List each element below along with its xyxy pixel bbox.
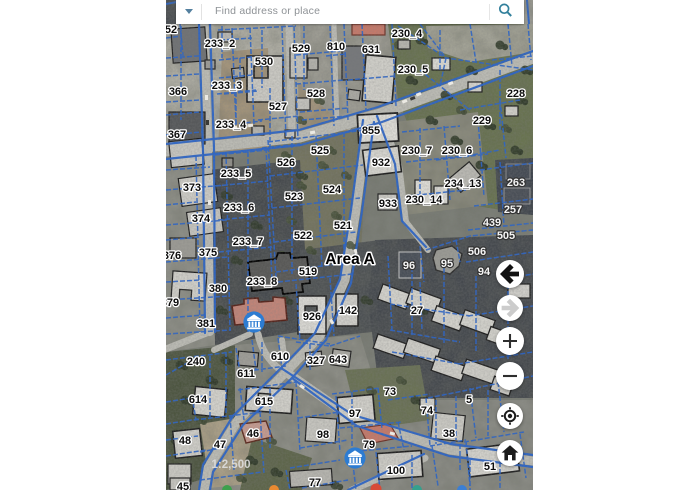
svg-text:439: 439 <box>483 217 501 229</box>
svg-text:521: 521 <box>334 220 352 232</box>
svg-text:45: 45 <box>177 481 189 490</box>
svg-text:Area A: Area A <box>325 251 374 268</box>
svg-text:615: 615 <box>255 396 273 408</box>
svg-text:380: 380 <box>209 283 227 295</box>
svg-text:379: 379 <box>166 297 179 309</box>
svg-text:810: 810 <box>327 41 345 53</box>
svg-text:234_13: 234_13 <box>445 178 482 190</box>
svg-text:611: 611 <box>237 368 255 380</box>
svg-text:51: 51 <box>484 461 496 473</box>
svg-text:614: 614 <box>189 394 208 406</box>
svg-text:233_3: 233_3 <box>212 80 243 92</box>
svg-text:1:2,500: 1:2,500 <box>211 459 250 471</box>
svg-text:100: 100 <box>387 465 405 477</box>
svg-text:230_7: 230_7 <box>402 145 433 157</box>
svg-text:47: 47 <box>214 439 226 451</box>
svg-text:375: 375 <box>199 247 217 259</box>
svg-text:233_7: 233_7 <box>233 236 264 248</box>
svg-text:94: 94 <box>478 266 491 278</box>
svg-text:376: 376 <box>166 250 181 262</box>
svg-text:528: 528 <box>307 88 325 100</box>
svg-text:932: 932 <box>372 157 390 169</box>
svg-text:233_2: 233_2 <box>205 38 236 50</box>
svg-text:233_8: 233_8 <box>247 276 278 288</box>
svg-text:98: 98 <box>317 429 329 441</box>
svg-text:530: 530 <box>255 56 273 68</box>
svg-text:374: 374 <box>192 213 211 225</box>
svg-text:142: 142 <box>339 305 357 317</box>
svg-text:73: 73 <box>384 386 396 398</box>
svg-text:529: 529 <box>292 43 310 55</box>
svg-text:263: 263 <box>507 177 525 189</box>
svg-text:327: 327 <box>307 355 325 367</box>
svg-text:5: 5 <box>466 394 472 406</box>
svg-text:367: 367 <box>168 129 186 141</box>
svg-text:233_6: 233_6 <box>224 202 255 214</box>
svg-text:74: 74 <box>421 405 434 417</box>
svg-text:48: 48 <box>179 435 191 447</box>
svg-text:523: 523 <box>285 191 303 203</box>
svg-text:505: 505 <box>497 230 515 242</box>
svg-text:96: 96 <box>403 260 415 272</box>
svg-text:77: 77 <box>309 477 321 489</box>
svg-text:229: 229 <box>473 115 491 127</box>
svg-text:855: 855 <box>362 125 380 137</box>
svg-text:27: 27 <box>411 305 423 317</box>
svg-text:97: 97 <box>349 408 361 420</box>
svg-text:240: 240 <box>187 356 205 368</box>
svg-text:79: 79 <box>363 439 375 451</box>
svg-text:46: 46 <box>247 428 259 440</box>
svg-text:366: 366 <box>169 86 187 98</box>
svg-text:643: 643 <box>329 354 347 366</box>
svg-text:230_14: 230_14 <box>406 194 444 206</box>
svg-text:233_5: 233_5 <box>221 168 252 180</box>
svg-text:233_4: 233_4 <box>216 119 247 131</box>
svg-text:933: 933 <box>379 198 397 210</box>
svg-text:526: 526 <box>277 157 295 169</box>
svg-text:519: 519 <box>299 266 317 278</box>
svg-text:230_5: 230_5 <box>398 64 429 76</box>
svg-text:610: 610 <box>271 351 289 363</box>
svg-text:230_6: 230_6 <box>442 145 473 157</box>
svg-text:527: 527 <box>269 101 287 113</box>
svg-text:506: 506 <box>468 246 486 258</box>
svg-text:95: 95 <box>441 258 453 270</box>
svg-text:52: 52 <box>166 24 177 36</box>
svg-text:257: 257 <box>504 204 522 216</box>
svg-text:230_4: 230_4 <box>392 28 423 40</box>
svg-text:522: 522 <box>294 230 312 242</box>
svg-text:524: 524 <box>323 184 342 196</box>
svg-text:631: 631 <box>362 44 380 56</box>
svg-text:228: 228 <box>507 88 525 100</box>
svg-text:38: 38 <box>443 428 455 440</box>
svg-text:381: 381 <box>197 318 215 330</box>
svg-text:373: 373 <box>183 182 201 194</box>
svg-text:525: 525 <box>311 145 329 157</box>
svg-text:926: 926 <box>303 311 321 323</box>
